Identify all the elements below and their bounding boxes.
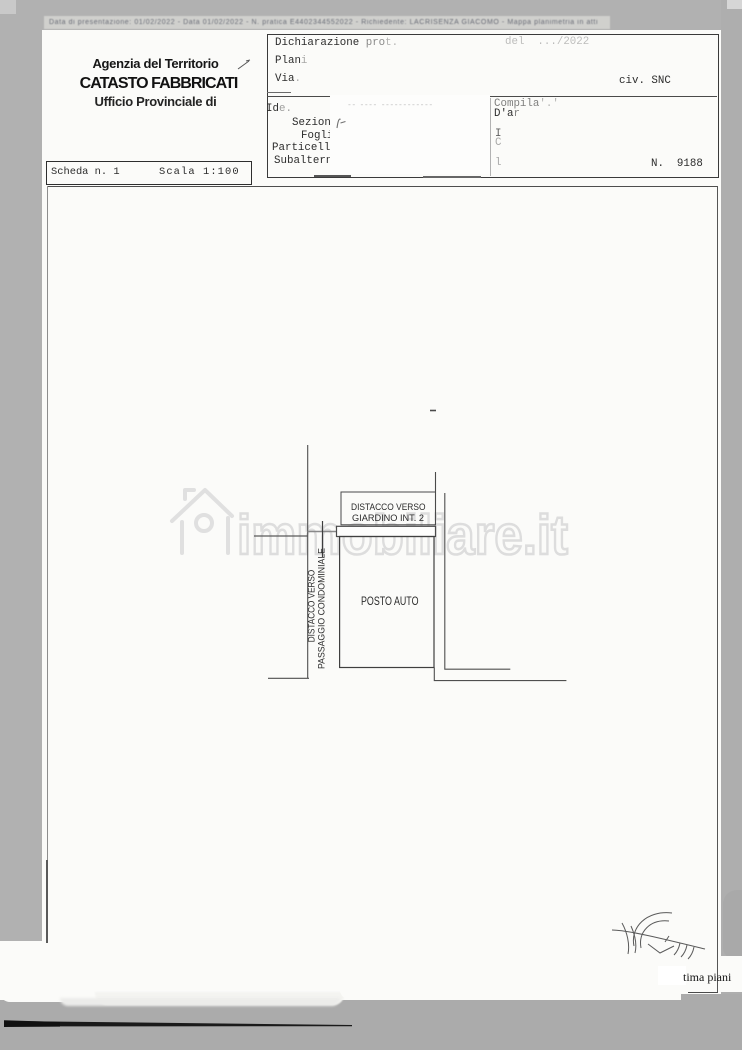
svg-text:PASSAGGIO CONDOMINIALE: PASSAGGIO CONDOMINIALE bbox=[317, 548, 328, 669]
svg-text:GIARDINO INT. 2: GIARDINO INT. 2 bbox=[352, 513, 424, 524]
svg-text:POSTO AUTO: POSTO AUTO bbox=[361, 596, 419, 608]
svg-text:DISTACCO VERSO: DISTACCO VERSO bbox=[351, 502, 426, 513]
